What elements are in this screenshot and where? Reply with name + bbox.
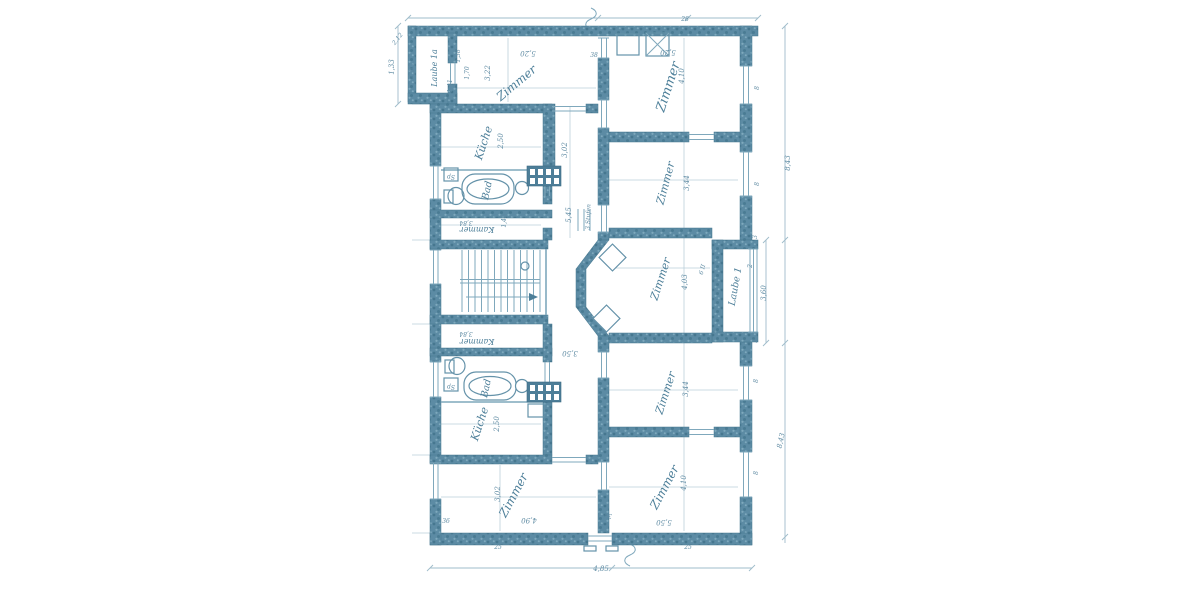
- wall: [586, 455, 598, 464]
- wall: [430, 315, 548, 324]
- wall: [408, 26, 758, 36]
- dim-text: 4,10: [680, 475, 688, 492]
- dim-text: 1,45: [501, 214, 508, 228]
- wall: [576, 269, 586, 307]
- dim-text: 2,50: [497, 133, 505, 150]
- wall: [609, 228, 712, 238]
- dim-text: 3,02: [561, 142, 569, 158]
- wall: [609, 333, 712, 343]
- dim-text-total-bottom: 4,85: [592, 565, 609, 573]
- dim-text: 8: [753, 379, 760, 383]
- wall: [430, 533, 588, 545]
- dim-text: 8: [753, 471, 760, 475]
- dim-text: 38: [604, 512, 612, 519]
- loggia-railing: [748, 249, 758, 332]
- dim-text: 3,84: [459, 219, 473, 226]
- wall: [740, 400, 752, 452]
- wall: [598, 128, 609, 205]
- chimney-upper: [527, 166, 561, 186]
- wall: [430, 210, 552, 218]
- sink-label: Sp: [447, 383, 455, 390]
- dim-text: 2,50: [493, 416, 501, 433]
- room-label-laube-1a: Laube 1a: [430, 49, 439, 88]
- dim-text: 5,45: [565, 207, 573, 223]
- dim-text: 28: [680, 16, 689, 23]
- dim-text: 4,10: [678, 68, 686, 85]
- wall: [714, 427, 740, 437]
- dim-text: 1,38: [455, 49, 462, 63]
- dim-text: 8: [754, 182, 761, 186]
- wall: [609, 132, 689, 142]
- washbasin-icon: [516, 380, 529, 393]
- dim-text: 3: [752, 339, 759, 343]
- dim-text: 5,20: [520, 49, 536, 57]
- wall: [598, 336, 609, 352]
- wall: [430, 104, 552, 113]
- wall: [543, 186, 552, 204]
- wall: [598, 378, 609, 462]
- wall: [740, 196, 752, 240]
- dim-text: 3,60: [760, 285, 768, 301]
- floor-plan-scan: Laube 1a Zimmer Küche Bad Kammer Zimmer …: [0, 0, 1200, 600]
- dim-text-total-right: 8,43: [784, 155, 792, 171]
- floor-plan-svg: Laube 1a Zimmer Küche Bad Kammer Zimmer …: [0, 0, 1200, 600]
- wall: [543, 324, 552, 362]
- wall: [430, 104, 441, 166]
- wall: [740, 104, 752, 152]
- wall: [586, 104, 598, 113]
- wall: [430, 397, 441, 463]
- wall: [714, 132, 740, 142]
- wall: [598, 58, 609, 100]
- wall: [598, 232, 609, 240]
- dim-text: 3,44: [682, 381, 690, 397]
- room-label-kammer-lower: Kammer: [459, 337, 496, 346]
- wall: [598, 490, 609, 533]
- sink-label: Sp: [447, 173, 455, 180]
- wall: [430, 455, 552, 464]
- dim-text: 1,41: [447, 79, 454, 92]
- washbasin-icon: [516, 182, 529, 195]
- dim-text: 5,50: [656, 518, 672, 526]
- dim-text: 25: [493, 544, 502, 551]
- dim-text: 3,44: [683, 175, 691, 191]
- dim-text: 25: [683, 544, 692, 551]
- wall: [543, 104, 555, 166]
- dim-text: 8: [754, 86, 761, 90]
- wall: [609, 427, 689, 437]
- dim-text: 36: [442, 518, 450, 525]
- dim-text: 1,33: [388, 59, 396, 75]
- dim-text: 2,85: [408, 63, 416, 80]
- wall: [740, 342, 752, 366]
- wall: [740, 26, 752, 66]
- dim-text: 2: [747, 264, 754, 269]
- dim-text: 3,02: [494, 486, 502, 502]
- dim-text: 4,90: [521, 516, 538, 524]
- stairs-note: 3 Stufen: [585, 204, 593, 230]
- wall: [543, 228, 552, 240]
- dim-text: 3,50: [562, 349, 578, 357]
- dim-text: 3,22: [484, 65, 492, 81]
- wall: [430, 240, 548, 249]
- wall: [430, 348, 552, 356]
- dim-text: 38: [590, 52, 598, 59]
- dim-text: 3,84: [459, 330, 473, 337]
- dim-text: 3: [752, 235, 759, 239]
- wall: [430, 499, 441, 545]
- dim-text: 1,70: [464, 66, 471, 80]
- dim-text: 4,03: [681, 274, 689, 291]
- wall: [612, 533, 752, 545]
- dim-text: 5,20: [660, 48, 676, 56]
- wall: [712, 240, 723, 342]
